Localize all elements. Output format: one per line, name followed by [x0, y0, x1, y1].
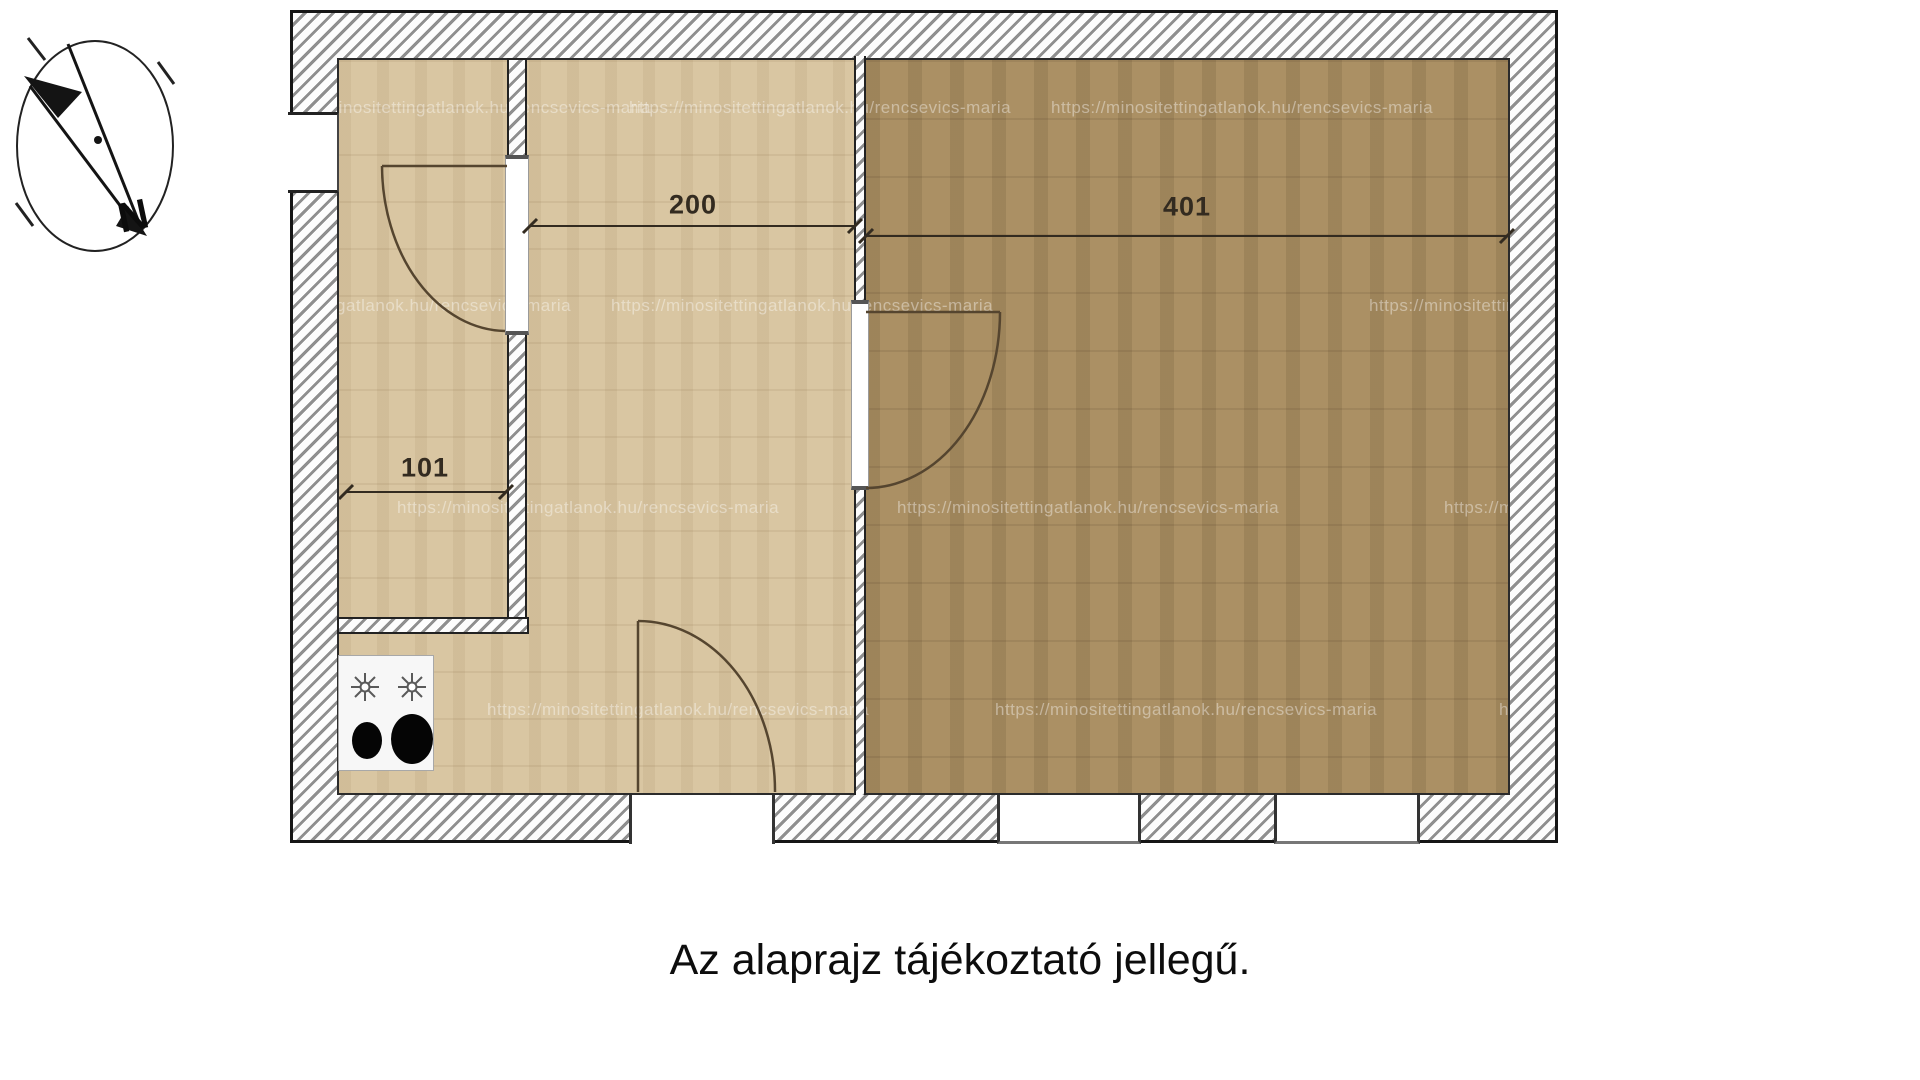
- watermark-text: https://minositettingatlanok.hu/rencsevi…: [995, 700, 1377, 720]
- watermark-text: https://minositettingatlanok.hu/rencsevi…: [487, 700, 869, 720]
- plan-caption: Az alaprajz tájékoztató jellegű.: [670, 936, 1251, 985]
- stove-pot-small: [352, 722, 382, 759]
- watermark-text: https://minositettingatlanok.hu/rencsevi…: [897, 498, 1279, 518]
- hall-door-opening: [505, 155, 529, 335]
- watermark-text: https://minositettingatlanok.hu/rencsevi…: [1369, 296, 1508, 316]
- watermark-text: https://minositettingatlanok.hu/rencsevi…: [339, 296, 571, 316]
- window-left-wall: [288, 112, 339, 193]
- stove-burner-icons: [339, 660, 435, 712]
- window-bottom-wall-1: [997, 795, 1141, 844]
- dimension-hall-width: 101: [401, 453, 449, 484]
- hall-wall-horizontal: [337, 617, 529, 634]
- door-bottom-wall: [629, 795, 775, 844]
- watermark-text: https://minositettingatlanok.hu/rencsevi…: [397, 498, 779, 518]
- watermark-text: https://minositettingatlanok.hu/rencsevi…: [629, 98, 1011, 118]
- stove-pot-large: [391, 714, 433, 764]
- stove-icon: [338, 655, 434, 771]
- watermark-text: https://minositettingatlanok.hu/rencsevi…: [1499, 700, 1508, 720]
- watermark-text: https://minositettingatlanok.hu/rencsevi…: [1444, 498, 1508, 518]
- dimension-left-room-width: 200: [669, 190, 717, 221]
- watermark-text: https://minositettingatlanok.hu/rencsevi…: [339, 98, 651, 118]
- compass-icon: [10, 28, 190, 278]
- compass-ticks: [16, 38, 174, 226]
- watermark-text: https://minositettingatlanok.hu/rencsevi…: [1051, 98, 1433, 118]
- window-bottom-wall-2: [1274, 795, 1420, 844]
- watermark-text: https://minositettingatlanok.hu/rencsevi…: [611, 296, 993, 316]
- dimension-right-room-width: 401: [1163, 192, 1211, 223]
- divider-door-opening: [851, 300, 869, 490]
- burner-icon: [351, 673, 379, 701]
- burner-icon: [398, 673, 426, 701]
- hall-wall-vertical: [507, 58, 527, 634]
